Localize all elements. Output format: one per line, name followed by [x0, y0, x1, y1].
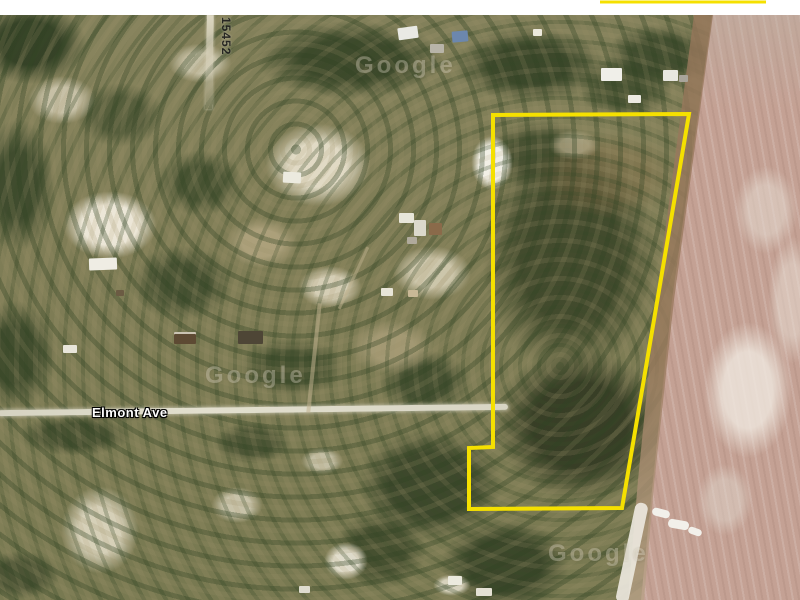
street-label-elmont-ave: Elmont Ave: [92, 405, 168, 420]
building-roof: [476, 588, 492, 596]
building-roof: [174, 332, 196, 344]
building-roof: [429, 223, 442, 235]
building-roof: [414, 220, 426, 236]
building-roof: [63, 345, 77, 353]
building-roof: [679, 75, 688, 82]
building-roof: [238, 331, 263, 344]
building-roof: [448, 576, 462, 585]
blue-tarp-roof: [452, 30, 469, 42]
watermark: Google: [548, 540, 649, 568]
lot-number-label: 15452: [219, 17, 233, 71]
watermark: Google: [205, 362, 306, 390]
mobile-home-roof: [89, 258, 117, 271]
building-roof: [399, 213, 414, 223]
building-roof: [628, 95, 641, 103]
photo-top-margin: [0, 0, 800, 15]
watermark: Google: [355, 52, 456, 80]
shed-roof: [381, 288, 393, 296]
building-roof: [299, 586, 310, 593]
shed-roof: [116, 290, 124, 296]
building-roof: [601, 68, 622, 81]
building-roof: [663, 70, 678, 81]
building-roof: [533, 29, 542, 36]
building-roof: [407, 237, 417, 244]
shed-roof: [408, 290, 418, 297]
aerial-parcel-map: Google Google Google Elmont Ave 15452: [0, 0, 800, 600]
building-roof: [283, 172, 302, 184]
